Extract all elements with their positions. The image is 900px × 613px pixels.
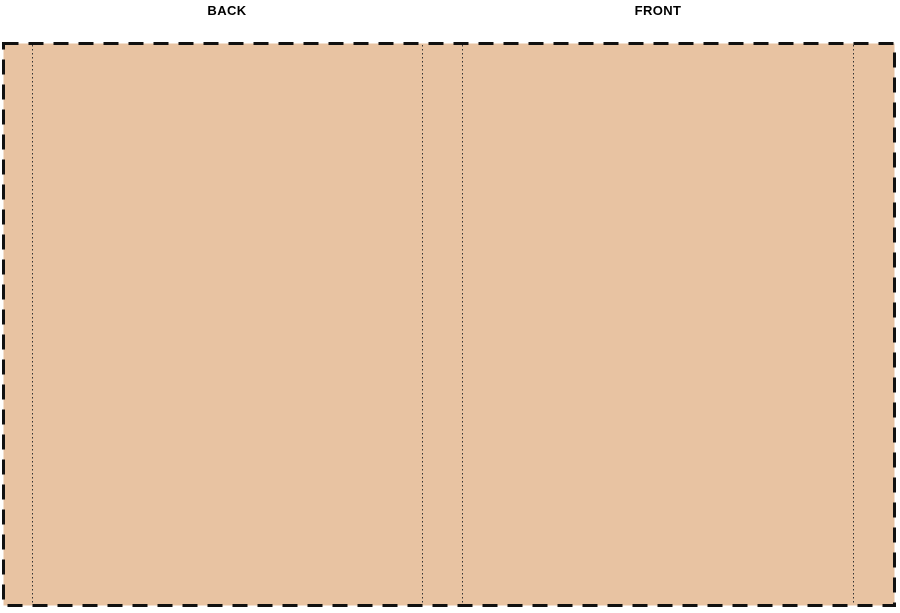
back-panel-label: BACK (207, 3, 246, 18)
cover-template-canvas: BACK FRONT (0, 0, 900, 613)
cover-spread-surface[interactable] (4, 44, 895, 606)
front-panel-label: FRONT (635, 3, 682, 18)
cover-spread-graphic: BACK FRONT (0, 0, 900, 613)
